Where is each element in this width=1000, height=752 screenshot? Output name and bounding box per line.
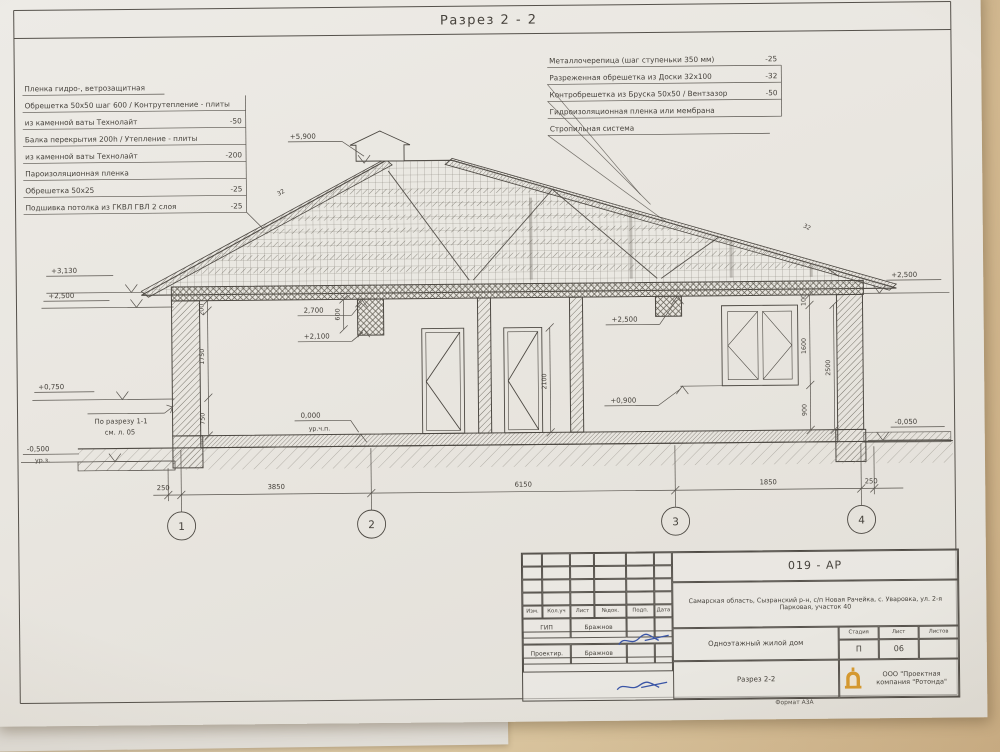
rev-header: №док. <box>594 605 626 618</box>
axis-number: 3 <box>672 516 679 528</box>
slope-label: 32 <box>802 222 812 232</box>
note-line: Обрешетка 50х50 шаг 600 / Контрутепление… <box>25 99 231 110</box>
ref-note-line: По разрезу 1-1 <box>95 417 148 426</box>
slope-label: 32 <box>276 188 286 198</box>
dim-label: 3850 <box>268 483 285 491</box>
note-line: Пароизоляционная пленка <box>25 168 129 178</box>
dim-label: 750 <box>200 413 207 425</box>
format-label: Формат А3А <box>775 699 813 706</box>
note-line: Металлочерепица (шаг ступеньки 350 мм) <box>549 55 714 66</box>
porch-slab <box>864 432 951 443</box>
axis-number: 4 <box>858 514 865 526</box>
company-name: ООО "Проектная компания "Ротонда" <box>867 669 956 686</box>
sheets-label: Листов <box>919 625 959 638</box>
elevation-sublabel: ур.з. <box>35 457 50 464</box>
elevation-label: +3,130 <box>51 267 77 275</box>
section-reference-note: По разрезу 1-1 см. л. 05 <box>87 405 172 437</box>
sheet-label: Лист <box>879 626 919 639</box>
note-line: Контробрешетка из Бруска 50х50 / Вентзаз… <box>549 89 727 100</box>
note-line: Стропильная система <box>550 124 634 134</box>
dim-label: 100 <box>800 294 807 306</box>
window <box>680 305 799 386</box>
dim-label: 2500 <box>825 360 832 376</box>
note-value: -50 <box>230 116 242 125</box>
rotonda-logo-icon <box>842 666 864 690</box>
object-name: Одноэтажный жилой дом <box>673 627 839 662</box>
rev-header: Подп. <box>626 604 654 617</box>
axis-number: 1 <box>178 521 185 533</box>
note-value: -200 <box>225 150 242 159</box>
elevation-label: +2,100 <box>304 333 330 341</box>
photo-of-drawing: Разрез 2 - 2 Пленка гидро-, ветрозащитна… <box>0 0 1000 752</box>
door-2 <box>504 327 543 432</box>
elevation-label: -0,050 <box>895 418 918 426</box>
stage-value: П <box>839 639 879 659</box>
door-1 <box>422 328 465 433</box>
note-line: Балка перекрытия 200h / Утепление - плит… <box>25 134 198 145</box>
note-value: -25 <box>230 184 242 193</box>
note-line: Гидроизоляционная пленка или мембрана <box>550 106 715 117</box>
note-value: -50 <box>766 88 778 97</box>
dim-label: 2100 <box>541 373 548 389</box>
dim-label: 250 <box>157 484 170 492</box>
elevation-label: +2,500 <box>48 292 74 300</box>
axis-number: 2 <box>368 519 375 531</box>
left-grade <box>78 461 175 471</box>
dim-label: 6150 <box>515 481 532 489</box>
note-line: из каменной ваты Технолайт <box>25 151 138 161</box>
elevation-label: +0,750 <box>38 383 64 391</box>
project-code: 019 - АР <box>672 549 958 582</box>
dim-label: 1600 <box>801 338 808 354</box>
roof-structure: 32 32 <box>140 126 898 297</box>
rev-header: Дата <box>654 604 672 617</box>
elevation-label: +2,500 <box>612 316 638 324</box>
note-line: из каменной ваты Технолайт <box>25 117 138 127</box>
elevation-label: 0,000 <box>301 412 321 420</box>
title-block: Изм. Кол.уч Лист №док. Подп. Дата ГИП Бр… <box>521 548 960 701</box>
note-value: -25 <box>231 201 243 210</box>
elevation-label: +0,900 <box>610 397 636 405</box>
ref-note-line: см. л. 05 <box>105 428 136 436</box>
note-value: -25 <box>765 54 777 63</box>
note-line: Разреженная обрешетка из Доски 32х100 <box>549 72 712 83</box>
project-address: Самарская область, Сызранский р-н, с/п Н… <box>672 579 958 628</box>
rev-header: Изм. <box>522 605 542 618</box>
elevation-label: -0,500 <box>27 445 50 453</box>
dim-label: 200 <box>198 304 205 316</box>
axis-bubbles: 1 2 3 4 <box>167 505 875 540</box>
drawing-sheet: Разрез 2 - 2 Пленка гидро-, ветрозащитна… <box>0 0 987 727</box>
elevation-sublabel: ур.ч.п. <box>309 426 331 433</box>
note-line: Пленка гидро-, ветрозащитная <box>24 83 145 93</box>
stage-label: Стадия <box>839 626 879 639</box>
dim-label: 900 <box>801 404 808 416</box>
dim-label: 250 <box>865 477 878 485</box>
dim-label: 1850 <box>760 478 777 486</box>
note-line: Обрешетка 50х25 <box>25 186 94 196</box>
sheet-value: 06 <box>879 639 919 659</box>
elevation-label: +2,500 <box>891 271 917 279</box>
note-line: Подшивка потолка из ГКВЛ ГВЛ 2 слоя <box>26 202 177 212</box>
vertical-dimensions: 200 1750 750 600 2100 100 1600 900 2500 <box>198 291 838 440</box>
rev-header: Лист <box>570 605 594 618</box>
dim-label: 600 <box>335 308 342 320</box>
rev-header: Кол.уч <box>542 605 570 618</box>
elevation-label: 2,700 <box>304 307 324 315</box>
dim-label: 1750 <box>199 349 206 365</box>
revision-table: Изм. Кол.уч Лист №док. Подп. Дата ГИП Бр… <box>522 552 673 700</box>
elevation-label: +5,900 <box>290 133 316 141</box>
sheet-name: Разрез 2-2 <box>673 660 839 700</box>
note-value: -32 <box>765 71 777 80</box>
section-title: Разрез 2 - 2 <box>440 13 538 29</box>
sheets-value <box>919 638 959 658</box>
